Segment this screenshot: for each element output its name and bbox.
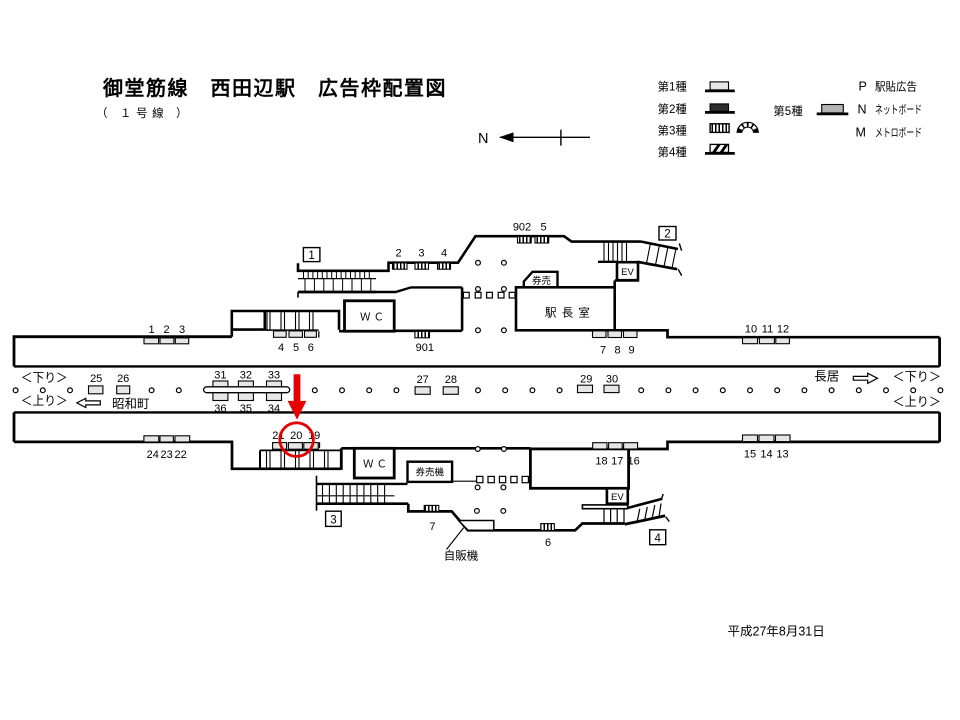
svg-text:＜下り＞: ＜下り＞ bbox=[893, 370, 942, 384]
svg-text:7: 7 bbox=[600, 345, 606, 357]
svg-text:6: 6 bbox=[308, 342, 314, 354]
svg-text:31: 31 bbox=[214, 369, 226, 381]
svg-text:長居: 長居 bbox=[814, 369, 839, 383]
svg-text:20: 20 bbox=[290, 430, 302, 442]
svg-text:30: 30 bbox=[606, 373, 618, 385]
svg-text:15: 15 bbox=[744, 449, 756, 461]
svg-text:28: 28 bbox=[445, 374, 457, 386]
svg-text:3: 3 bbox=[179, 324, 185, 336]
svg-text:3: 3 bbox=[418, 248, 424, 260]
svg-text:901: 901 bbox=[416, 342, 434, 354]
svg-text:6: 6 bbox=[545, 537, 551, 549]
svg-text:32: 32 bbox=[240, 369, 252, 381]
svg-text:駅 長 室: 駅 長 室 bbox=[545, 306, 591, 320]
svg-text:メトロボード: メトロボード bbox=[875, 127, 922, 140]
svg-text:26: 26 bbox=[117, 373, 129, 385]
svg-text:10: 10 bbox=[745, 324, 757, 336]
svg-text:P: P bbox=[859, 80, 867, 94]
svg-text:27: 27 bbox=[417, 374, 429, 386]
svg-text:25: 25 bbox=[90, 373, 102, 385]
svg-text:902: 902 bbox=[513, 222, 531, 234]
svg-text:8: 8 bbox=[614, 345, 620, 357]
svg-text:24: 24 bbox=[147, 449, 159, 461]
svg-text:N: N bbox=[478, 131, 488, 147]
svg-text:駅貼広告: 駅貼広告 bbox=[875, 80, 917, 94]
svg-text:第3種: 第3種 bbox=[658, 124, 688, 138]
svg-text:＜上り＞: ＜上り＞ bbox=[21, 394, 68, 408]
svg-text:4: 4 bbox=[441, 248, 447, 260]
svg-text:33: 33 bbox=[268, 369, 280, 381]
svg-text:5: 5 bbox=[293, 342, 299, 354]
svg-text:（ １号線 ）: （ １号線 ） bbox=[96, 106, 192, 120]
svg-text:23: 23 bbox=[160, 449, 172, 461]
svg-text:4: 4 bbox=[654, 533, 661, 545]
svg-text:第4種: 第4種 bbox=[658, 145, 688, 159]
svg-text:7: 7 bbox=[429, 521, 435, 533]
svg-text:＜上り＞: ＜上り＞ bbox=[893, 395, 942, 409]
svg-text:第1種: 第1種 bbox=[658, 80, 688, 94]
svg-text:14: 14 bbox=[760, 449, 772, 461]
svg-text:18: 18 bbox=[595, 455, 607, 467]
svg-text:券売機: 券売機 bbox=[416, 467, 445, 479]
svg-text:22: 22 bbox=[174, 449, 186, 461]
svg-text:5: 5 bbox=[540, 222, 546, 234]
svg-text:11: 11 bbox=[762, 324, 773, 336]
svg-text:16: 16 bbox=[627, 455, 639, 467]
svg-text:平成27年8月31日: 平成27年8月31日 bbox=[728, 625, 825, 639]
svg-text:13: 13 bbox=[776, 449, 788, 461]
svg-text:29: 29 bbox=[580, 373, 592, 385]
svg-text:2: 2 bbox=[395, 248, 401, 260]
svg-text:御堂筋線 西田辺駅 広告枠配置図: 御堂筋線 西田辺駅 広告枠配置図 bbox=[102, 76, 447, 100]
svg-text:M: M bbox=[856, 126, 866, 140]
svg-text:2: 2 bbox=[164, 324, 170, 336]
svg-text:1: 1 bbox=[148, 324, 154, 336]
svg-text:券売: 券売 bbox=[532, 275, 551, 287]
svg-text:9: 9 bbox=[628, 345, 634, 357]
svg-text:ＷＣ: ＷＣ bbox=[360, 312, 387, 324]
svg-text:EV: EV bbox=[611, 492, 624, 503]
svg-text:自販機: 自販機 bbox=[444, 549, 479, 563]
svg-text:昭和町: 昭和町 bbox=[112, 397, 150, 411]
svg-text:2: 2 bbox=[664, 229, 670, 241]
svg-text:EV: EV bbox=[621, 267, 634, 278]
svg-text:4: 4 bbox=[278, 342, 284, 354]
svg-text:3: 3 bbox=[330, 515, 336, 527]
svg-text:＜下り＞: ＜下り＞ bbox=[21, 371, 68, 385]
svg-text:17: 17 bbox=[611, 455, 623, 467]
svg-text:ネットボード: ネットボード bbox=[875, 104, 922, 117]
svg-text:1: 1 bbox=[308, 250, 314, 262]
svg-text:12: 12 bbox=[777, 324, 789, 336]
svg-text:ＷＣ: ＷＣ bbox=[363, 459, 390, 471]
svg-text:N: N bbox=[858, 103, 867, 117]
svg-text:第2種: 第2種 bbox=[658, 102, 688, 116]
svg-text:第5種: 第5種 bbox=[773, 104, 803, 118]
